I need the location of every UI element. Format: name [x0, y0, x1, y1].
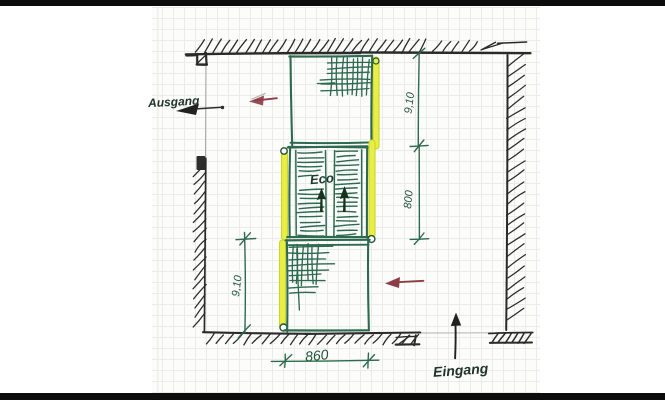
svg-text:860: 860	[304, 346, 329, 364]
svg-text:Eco: Eco	[309, 170, 334, 187]
svg-text:800: 800	[402, 189, 416, 209]
